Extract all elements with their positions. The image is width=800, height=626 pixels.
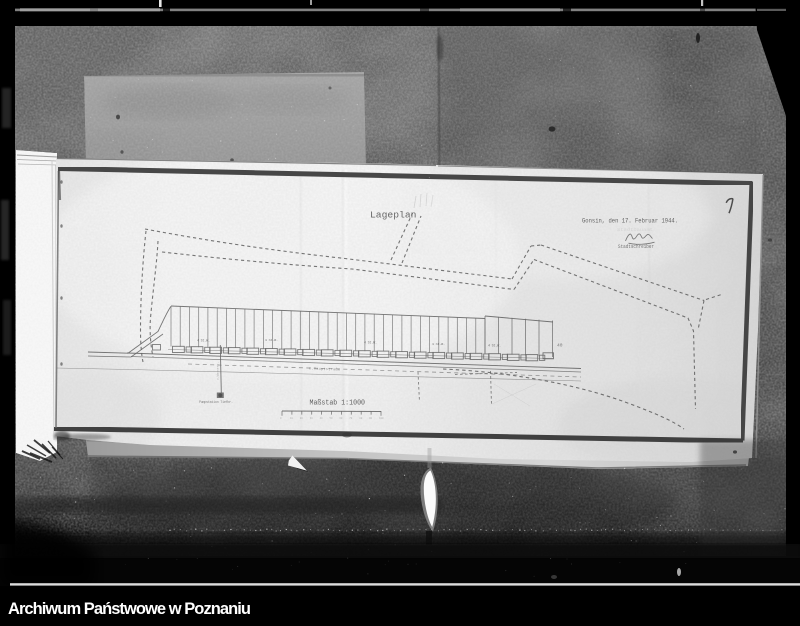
svg-text:50: 50 — [330, 417, 334, 420]
svg-text:z.Wasserw.: z.Wasserw. — [217, 362, 220, 380]
svg-text:4 St.W.: 4 St.W. — [265, 339, 278, 343]
svg-text:40: 40 — [320, 417, 324, 420]
svg-text:Stadtbauamt: Stadtbauamt — [617, 227, 653, 233]
svg-text:20: 20 — [300, 417, 304, 420]
svg-text:Gonsin, den 17. Februar 1944.: Gonsin, den 17. Februar 1944. — [582, 218, 678, 225]
svg-text:Lageplan: Lageplan — [370, 211, 417, 221]
svg-text:70: 70 — [349, 417, 353, 420]
svg-text:4 St.W.: 4 St.W. — [197, 340, 210, 344]
svg-text:Pumpstation Tiefbr.: Pumpstation Tiefbr. — [199, 400, 233, 405]
svg-text:4 St.W.: 4 St.W. — [364, 342, 377, 346]
svg-text:Maßstab 1:1000: Maßstab 1:1000 — [310, 400, 366, 408]
svg-text:4 St.W.: 4 St.W. — [488, 345, 501, 349]
svg-text:90: 90 — [369, 417, 373, 420]
svg-text:60: 60 — [339, 417, 343, 420]
svg-text:10: 10 — [290, 417, 294, 420]
svg-text:80: 80 — [359, 417, 363, 420]
svg-text:K.Hauptstraße: K.Hauptstraße — [309, 367, 340, 373]
svg-text:30: 30 — [310, 417, 314, 420]
svg-text:100: 100 — [379, 417, 384, 420]
svg-text:Stadtschreiber: Stadtschreiber — [618, 244, 654, 250]
svg-text:4 St.W.: 4 St.W. — [432, 343, 445, 347]
svg-text:40: 40 — [557, 343, 563, 349]
